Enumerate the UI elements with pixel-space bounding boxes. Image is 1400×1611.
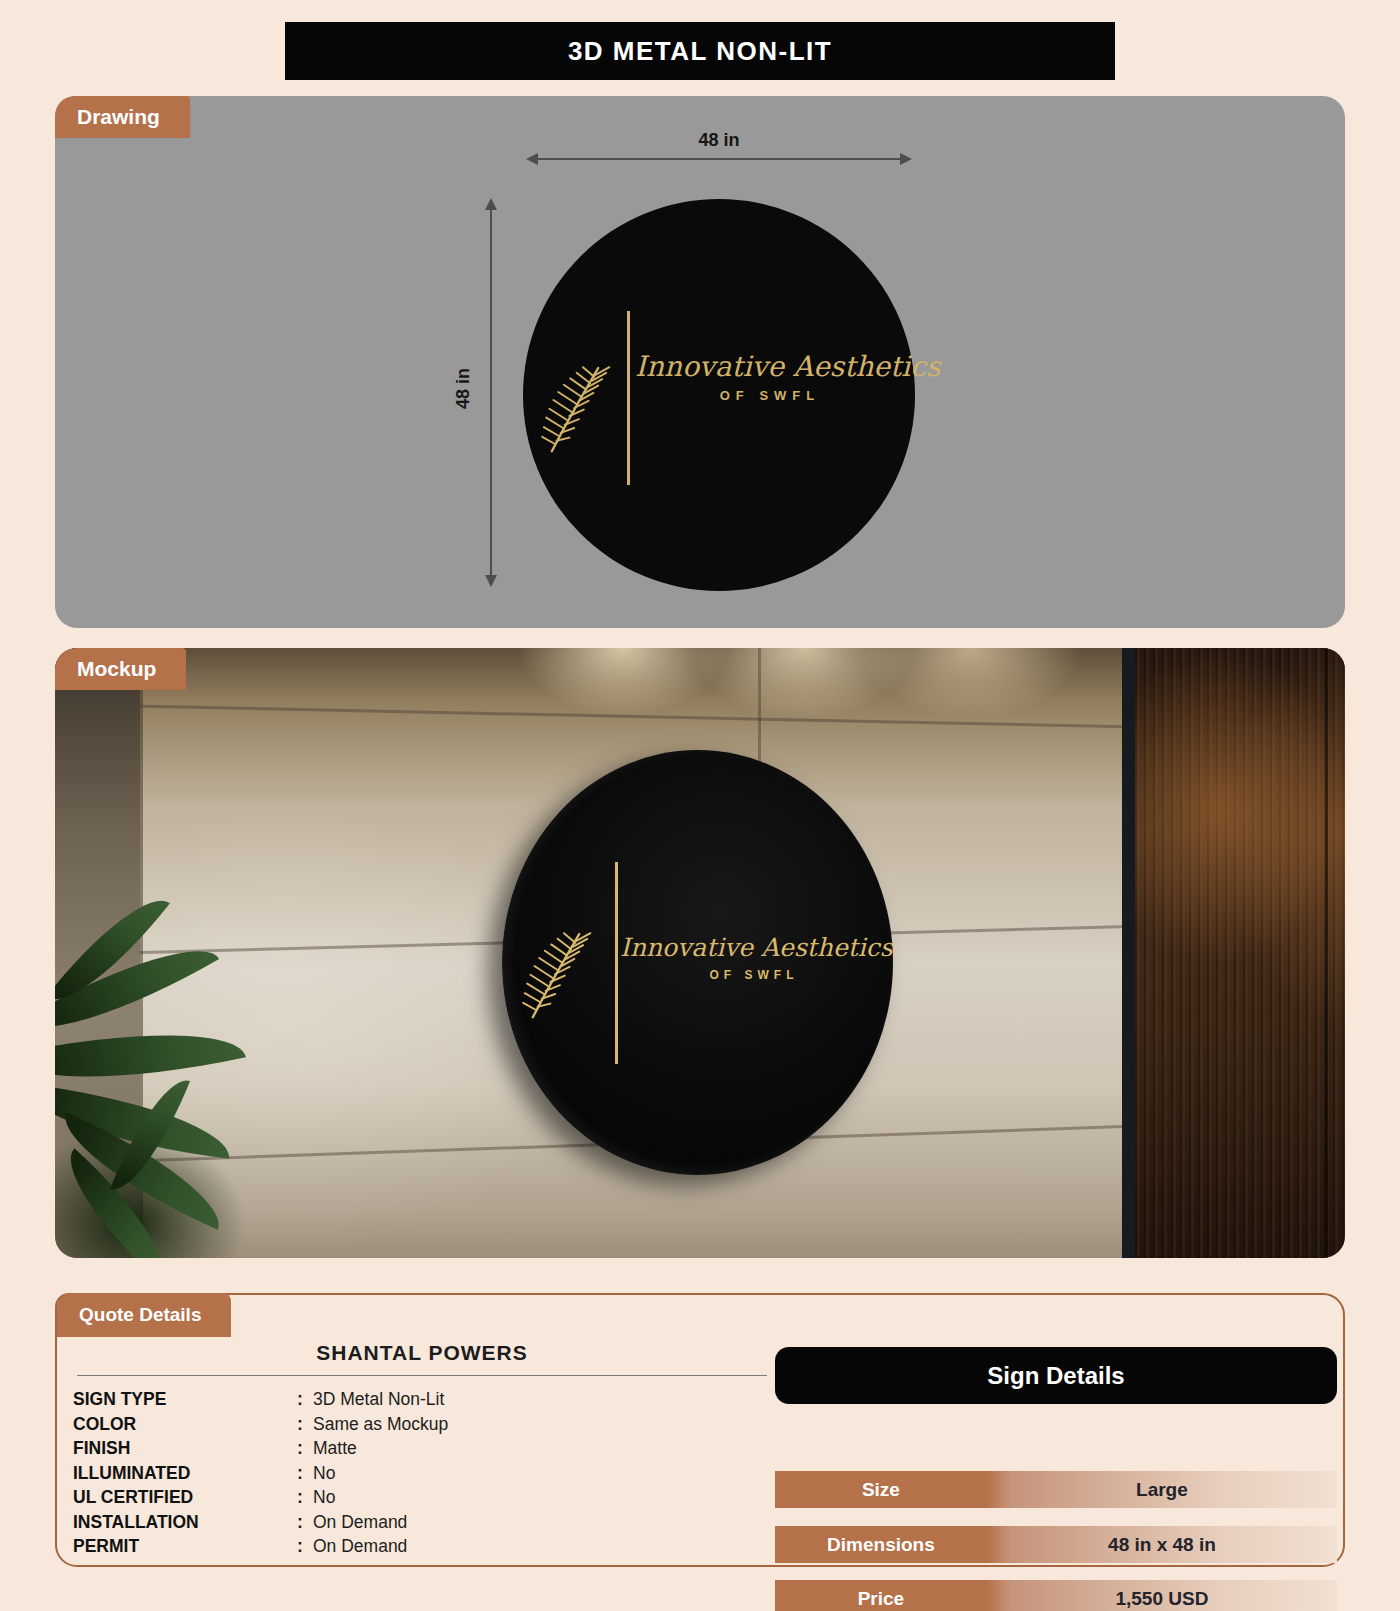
mockup-tab-label: Mockup: [77, 657, 156, 681]
quote-field-row: ILLUMINATED : No: [73, 1461, 753, 1486]
field-value: On Demand: [313, 1534, 753, 1559]
row-value: Large: [987, 1471, 1337, 1508]
width-dimension-label: 48 in: [528, 130, 910, 151]
logo-subtitle: OF SWFL: [620, 968, 888, 982]
quote-field-row: SIGN TYPE : 3D Metal Non-Lit: [73, 1387, 753, 1412]
field-value: No: [313, 1485, 753, 1510]
field-value: On Demand: [313, 1510, 753, 1535]
page-title: 3D METAL NON-LIT: [568, 36, 832, 67]
row-label: Size: [775, 1471, 987, 1508]
height-dimension-arrow: [490, 200, 492, 585]
field-value: 3D Metal Non-Lit: [313, 1387, 753, 1412]
wood-panel-edge: [1122, 648, 1135, 1258]
quote-details-panel: Quote Details SHANTAL POWERS SIGN TYPE :…: [55, 1293, 1345, 1567]
field-colon: :: [297, 1485, 313, 1510]
field-label: COLOR: [73, 1412, 297, 1437]
quote-field-row: PERMIT : On Demand: [73, 1534, 753, 1559]
row-label: Dimensions: [775, 1526, 987, 1563]
quote-fields: SIGN TYPE : 3D Metal Non-Lit COLOR : Sam…: [73, 1387, 753, 1559]
field-label: UL CERTIFIED: [73, 1485, 297, 1510]
logo-name: Innovative Aesthetics: [620, 932, 888, 964]
logo-divider: [627, 311, 630, 485]
palm-leaf-icon: [520, 918, 600, 1030]
quote-field-row: INSTALLATION : On Demand: [73, 1510, 753, 1535]
row-value: 48 in x 48 in: [987, 1526, 1337, 1563]
table-row: Dimensions 48 in x 48 in: [775, 1526, 1337, 1563]
drawing-tab-label: Drawing: [77, 105, 160, 129]
field-value: Matte: [313, 1436, 753, 1461]
sign-mockup: Innovative Aesthetics OF SWFL: [502, 750, 893, 1175]
palm-leaf-icon: [539, 355, 619, 461]
field-colon: :: [297, 1510, 313, 1535]
row-label: Price: [775, 1580, 987, 1611]
quote-field-row: UL CERTIFIED : No: [73, 1485, 753, 1510]
sign-drawing: Innovative Aesthetics OF SWFL: [523, 199, 915, 591]
logo-text: Innovative Aesthetics OF SWFL: [620, 932, 888, 982]
field-colon: :: [297, 1461, 313, 1486]
sign-details-title: Sign Details: [987, 1362, 1124, 1390]
table-row: Size Large: [775, 1471, 1337, 1508]
logo-subtitle: OF SWFL: [635, 388, 905, 403]
field-colon: :: [297, 1387, 313, 1412]
field-label: FINISH: [73, 1436, 297, 1461]
quote-details-tab: Quote Details: [57, 1293, 231, 1337]
field-colon: :: [297, 1412, 313, 1437]
mockup-panel: Innovative Aesthetics OF SWFL Mockup: [55, 648, 1345, 1258]
logo-divider: [615, 862, 618, 1064]
field-value: No: [313, 1461, 753, 1486]
table-row: Price 1,550 USD: [775, 1580, 1337, 1611]
wood-panel: [1135, 648, 1345, 1258]
field-colon: :: [297, 1436, 313, 1461]
logo-name: Innovative Aesthetics: [635, 349, 905, 385]
field-label: ILLUMINATED: [73, 1461, 297, 1486]
customer-underline: [77, 1375, 767, 1376]
mockup-tab: Mockup: [55, 648, 186, 690]
field-label: INSTALLATION: [73, 1510, 297, 1535]
field-value: Same as Mockup: [313, 1412, 753, 1437]
field-label: SIGN TYPE: [73, 1387, 297, 1412]
quote-sheet: 3D METAL NON-LIT Drawing 48 in 48 in Inn…: [0, 0, 1400, 1611]
quote-field-row: COLOR : Same as Mockup: [73, 1412, 753, 1437]
width-dimension-arrow: [528, 158, 910, 160]
logo-text: Innovative Aesthetics OF SWFL: [635, 349, 905, 403]
wood-panel-seam: [1325, 648, 1328, 1258]
drawing-tab: Drawing: [55, 96, 190, 138]
drawing-panel: Drawing 48 in 48 in Innovative Aesthetic…: [55, 96, 1345, 628]
field-colon: :: [297, 1534, 313, 1559]
height-dimension-label: 48 in: [453, 359, 474, 419]
title-banner: 3D METAL NON-LIT: [285, 22, 1115, 80]
quote-details-tab-label: Quote Details: [79, 1304, 201, 1326]
field-label: PERMIT: [73, 1534, 297, 1559]
quote-field-row: FINISH : Matte: [73, 1436, 753, 1461]
row-value: 1,550 USD: [987, 1580, 1337, 1611]
customer-name: SHANTAL POWERS: [77, 1341, 767, 1365]
sign-details-header: Sign Details: [775, 1347, 1337, 1404]
